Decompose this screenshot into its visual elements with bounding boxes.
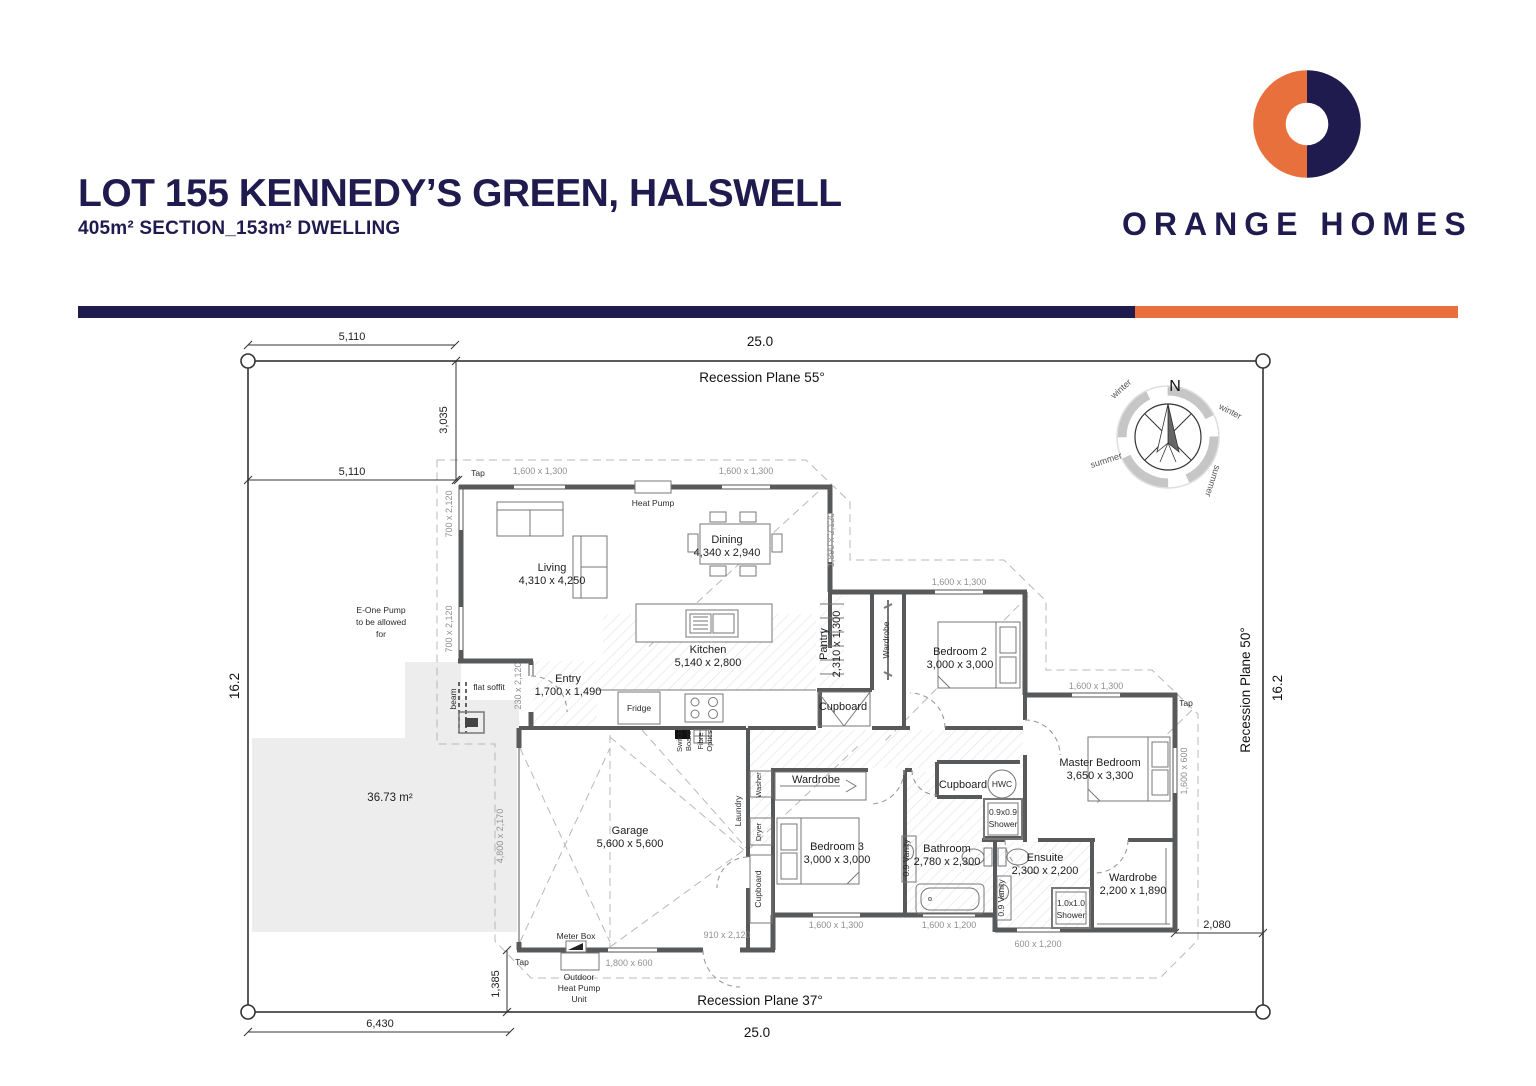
epump-note-2: to be allowed (356, 617, 406, 627)
recession-plane-50: Recession Plane 50° (1238, 627, 1253, 752)
win-1600x1300-b: 1,600 x 1,300 (719, 466, 774, 476)
label-shower09-a: 0.9x0.9 (989, 807, 1017, 817)
win-1600x1300-c: 1,600 x 1,300 (932, 577, 987, 587)
label-flat-soffit: flat soffit (473, 682, 505, 692)
door-910x2120: 910 x 2,120 (703, 930, 750, 940)
label-tap-s: Tap (515, 957, 529, 967)
room-bathroom-dims: 2,780 x 2,300 (914, 856, 981, 868)
room-living: Living (538, 562, 567, 574)
room-kitchen-dims: 5,140 x 2,800 (675, 657, 742, 669)
room-master-dims: 3,650 x 3,300 (1067, 770, 1134, 782)
label-fibre-1: Fibre (696, 732, 705, 749)
dim-5110-house: 5,110 (339, 466, 366, 478)
label-hwc: HWC (992, 779, 1012, 789)
label-cupboard-hwc: Cupboard (939, 779, 987, 791)
compass-north: N (1169, 378, 1181, 395)
label-heat-pump: Heat Pump (632, 498, 675, 508)
win-1890x2120: 1,890 x 2,120 (826, 513, 836, 568)
label-ohp-2: Heat Pump (558, 983, 601, 993)
label-washer: Washer (754, 772, 763, 798)
label-shower10-b: Shower (1057, 910, 1086, 920)
label-shower10-a: 1.0x1.0 (1057, 898, 1085, 908)
room-dining: Dining (711, 534, 742, 546)
room-bedroom2-dims: 3,000 x 3,000 (927, 659, 994, 671)
dim-6430: 6,430 (366, 1018, 394, 1030)
label-beam: beam (448, 688, 458, 709)
driveway-area-label: 36.73 m² (367, 792, 413, 804)
room-pantry-dims: 2,310 x 1,300 (831, 611, 843, 678)
win-700x2120-b: 700 x 2,120 (444, 605, 454, 652)
room-bedroom3: Bedroom 3 (810, 841, 864, 853)
room-ensuite: Ensuite (1027, 852, 1064, 864)
compass-winter-nw: winter (1108, 377, 1133, 401)
label-switchboard-1: Switch (675, 730, 684, 752)
win-1800x600: 1,800 x 600 (605, 958, 652, 968)
boundary-top-length: 25.0 (747, 334, 773, 349)
win-1600x1300-d: 1,600 x 1,300 (1069, 681, 1124, 691)
room-garage: Garage (612, 825, 649, 837)
label-vanity-bath: 0.9 Vanity (901, 839, 911, 877)
boundary-left-depth: 16.2 (227, 673, 242, 699)
compass-winter-e: winter (1217, 401, 1244, 421)
label-laundry: Laundry (733, 795, 743, 826)
site-plan-drawing: Living 4,310 x 4,250 Dining 4,340 x 2,94… (0, 0, 1536, 1086)
dim-5110-top: 5,110 (339, 331, 366, 343)
room-robe-master-dims: 2,200 x 1,890 (1100, 885, 1167, 897)
room-bedroom2: Bedroom 2 (933, 646, 987, 658)
dim-3035: 3,035 (438, 406, 450, 434)
room-ensuite-dims: 2,300 x 2,200 (1012, 865, 1079, 877)
win-1600x600: 1,600 x 600 (1179, 747, 1189, 794)
compass-summer-sw: summer (1089, 450, 1123, 470)
label-wardrobe-bed2: Wardrobe (881, 621, 891, 658)
win-600x1200: 600 x 1,200 (1014, 939, 1061, 949)
room-entry-dims: 1,700 x 1,490 (535, 686, 602, 698)
label-tap-e: Tap (1179, 698, 1193, 708)
win-1600x1300-e: 1,600 x 1,300 (809, 920, 864, 930)
room-garage-dims: 5,600 x 5,600 (597, 838, 664, 850)
label-switchboard-2: Board (684, 731, 693, 751)
room-master: Master Bedroom (1059, 757, 1140, 769)
label-dryer: Dryer (754, 822, 763, 841)
win-700x2120-a: 700 x 2,120 (444, 490, 454, 537)
label-cupboard-hall: Cupboard (819, 701, 867, 713)
epump-note-1: E-One Pump (356, 605, 405, 615)
room-living-dims: 4,310 x 4,250 (519, 575, 586, 587)
room-kitchen: Kitchen (690, 644, 727, 656)
room-entry: Entry (555, 673, 581, 685)
epump-note-3: for (376, 629, 386, 639)
room-bathroom: Bathroom (923, 843, 971, 855)
label-fridge: Fridge (627, 703, 651, 713)
label-meter-box: Meter Box (557, 931, 596, 941)
label-wardrobe-bed3: Wardrobe (792, 774, 840, 786)
label-tap-nw: Tap (471, 468, 485, 478)
label-cupboard-bed3: Cupboard (753, 870, 763, 908)
boundary-bottom-length: 25.0 (744, 1025, 770, 1040)
label-shower09-b: Shower (989, 819, 1018, 829)
label-fibre-2: Optics (705, 730, 714, 752)
recession-plane-55: Recession Plane 55° (699, 370, 824, 385)
label-ohp-1: Outdoor (564, 972, 595, 982)
compass-rose-icon: N winter winter summer summer (1089, 377, 1243, 498)
garage-door-4800x2170: 4,800 x 2,170 (495, 809, 505, 864)
win-1600x1300-a: 1,600 x 1,300 (513, 466, 568, 476)
boundary-right-depth: 16.2 (1270, 675, 1285, 701)
room-robe-master: Wardrobe (1109, 872, 1157, 884)
label-vanity-ensuite: 0.9 Vanity (996, 879, 1006, 917)
win-230x2120: 230 x 2,120 (513, 662, 523, 709)
room-bedroom3-dims: 3,000 x 3,000 (804, 854, 871, 866)
dim-1385: 1,385 (490, 970, 502, 998)
plan-sheet: LOT 155 KENNEDY’S GREEN, HALSWELL 405m² … (0, 0, 1536, 1086)
room-dining-dims: 4,340 x 2,940 (694, 547, 761, 559)
recession-plane-37: Recession Plane 37° (697, 993, 822, 1008)
label-ohp-3: Unit (571, 994, 587, 1004)
dim-2080: 2,080 (1203, 919, 1231, 931)
win-1600x1200: 1,600 x 1,200 (922, 920, 977, 930)
room-pantry: Pantry (818, 628, 830, 660)
